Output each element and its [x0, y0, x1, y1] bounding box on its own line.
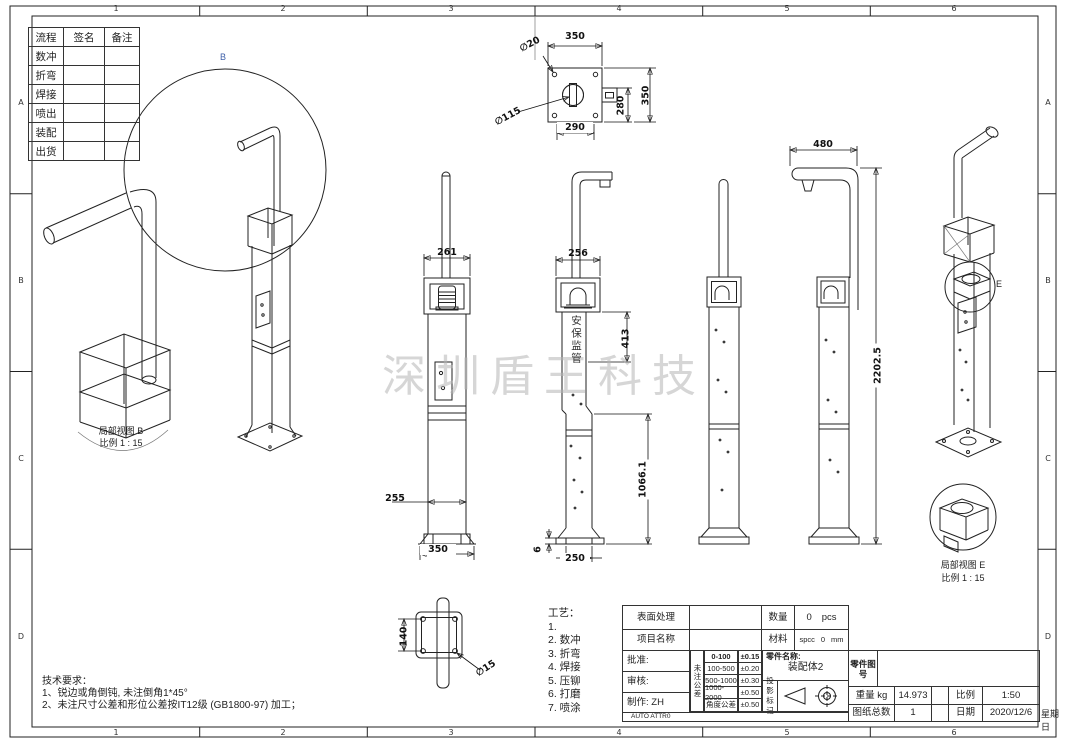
scale-value: 1:50: [982, 686, 1040, 705]
dim-top-bottom: 290: [557, 122, 593, 133]
row-right-b: B: [1040, 276, 1056, 285]
part-number-value: [877, 650, 1040, 687]
project-name-value: [689, 629, 762, 651]
detail-e-caption: 局部视图 E: [928, 558, 998, 571]
dim-arm-length: 480: [806, 139, 840, 150]
row-right-c: C: [1040, 454, 1056, 463]
zone-top-3: 3: [443, 4, 459, 13]
row-right-d: D: [1040, 632, 1056, 641]
row-left-a: A: [13, 98, 29, 107]
tech-notes-line2: 2、未注尺寸公差和形位公差按IT12级 (GB1800-97) 加工；: [42, 700, 301, 712]
third-angle-projection-icon: [779, 681, 847, 711]
tolerance-range: 角度公差: [704, 698, 738, 712]
process-header-flow: 流程: [29, 28, 64, 47]
dim-front-pole-width: 255: [383, 493, 407, 504]
dim-side-lower-h: 1066.1: [638, 460, 649, 500]
reviewer-field: 审核:: [622, 671, 690, 693]
process-step: 装配: [29, 123, 64, 142]
process-signoff-table: 流程 签名 备注 数冲 折弯 焊接 喷出 装配 出货: [28, 27, 140, 161]
process-list: 工艺： 1. 2. 数冲 3. 折弯 4. 焊接 5. 压铆 6. 打磨 7. …: [548, 607, 581, 715]
approver-field: 批准:: [622, 650, 690, 672]
project-name-label: 项目名称: [622, 629, 690, 651]
zone-bottom-6: 6: [946, 728, 962, 737]
sheet-count-value: 1: [894, 704, 932, 722]
material-unit: mm: [831, 635, 844, 645]
dim-front-base: 350: [420, 544, 456, 555]
surface-treatment-value: [689, 605, 762, 630]
detail-view-e-drawing: [930, 484, 996, 552]
process-list-item: 5. 压铆: [548, 675, 581, 689]
tolerance-title: 未注公差: [690, 650, 704, 712]
zone-bottom-4: 4: [611, 728, 627, 737]
dim-side-plate-t: 6: [533, 544, 544, 556]
date-value: 2020/12/6: [982, 704, 1040, 722]
zone-top-4: 4: [611, 4, 627, 13]
technical-notes: 技术要求： 1、锐边或角倒钝, 未注倒角1*45° 2、未注尺寸公差和形位公差按…: [42, 676, 301, 712]
dim-top-outer-h: 350: [641, 82, 652, 110]
zone-top-1: 1: [108, 4, 124, 13]
dim-side-top-width: 256: [560, 248, 596, 259]
process-header-sign: 签名: [64, 28, 105, 47]
spare-cell: [931, 686, 949, 705]
process-list-title: 工艺：: [548, 607, 581, 621]
process-list-item: 4. 焊接: [548, 661, 581, 675]
zone-bottom-3: 3: [443, 728, 459, 737]
detail-e-marker: E: [993, 279, 1005, 289]
quantity-number: 0: [806, 613, 811, 623]
material-value: spcc 0 mm: [794, 629, 849, 651]
weight-value: 14.973: [894, 686, 932, 705]
process-step: 数冲: [29, 47, 64, 66]
tech-notes-title: 技术要求：: [42, 676, 301, 688]
detail-view-b-drawing: [42, 190, 170, 451]
flange-view-drawing: [398, 598, 480, 688]
projection-label: 投影标记: [762, 680, 778, 712]
isometric-right-view-drawing: [936, 125, 1001, 457]
zone-top-5: 5: [779, 4, 795, 13]
engineering-drawing-sheet: 深圳盾王科技 1 2 3 4 5 6 1 2 3 4 5 6 A B C D A…: [0, 0, 1066, 743]
material-type: spcc: [799, 635, 814, 645]
projection-symbol-cell: [777, 680, 849, 712]
process-step: 喷出: [29, 104, 64, 123]
detail-circle-b: [124, 69, 326, 271]
sheet-count-label: 图纸总数: [848, 704, 895, 722]
zone-bottom-1: 1: [108, 728, 124, 737]
process-list-item: 3. 折弯: [548, 648, 581, 662]
scale-label: 比例: [948, 686, 983, 705]
watermark: 深圳盾王科技: [382, 340, 706, 404]
row-left-b: B: [13, 276, 29, 285]
date-weekday: 星期日: [1041, 707, 1066, 733]
maker-field: 制作: ZH: [622, 692, 690, 713]
beacon-panel-text: 安保监管: [569, 315, 584, 365]
process-step: 焊接: [29, 85, 64, 104]
zone-top-2: 2: [275, 4, 291, 13]
part-number-label: 零件图号: [848, 650, 878, 687]
process-header-note: 备注: [105, 28, 140, 47]
quantity-value: 0 pcs: [794, 605, 849, 630]
rear-view-drawing: [699, 180, 749, 545]
date-label: 日期: [948, 704, 983, 722]
material-thickness: 0: [821, 635, 825, 645]
weight-label: 重量 kg: [848, 686, 895, 705]
process-list-item: 6. 打磨: [548, 688, 581, 702]
quantity-unit: pcs: [822, 613, 837, 623]
zone-bottom-5: 5: [779, 728, 795, 737]
process-list-item: 7. 喷涂: [548, 702, 581, 716]
part-name-value: 装配体2: [788, 663, 824, 673]
dim-top-inner-h: 280: [616, 92, 627, 120]
tolerance-value: ±0.50: [738, 698, 762, 712]
process-list-item: 2. 数冲: [548, 634, 581, 648]
process-step: 出货: [29, 142, 64, 161]
row-left-c: C: [13, 454, 29, 463]
dim-top-width: 350: [557, 31, 593, 42]
arm-view-drawing: [790, 146, 882, 544]
detail-b-marker: B: [216, 52, 230, 62]
dim-side-base-w: 250: [560, 553, 590, 564]
surface-treatment-label: 表面处理: [622, 605, 690, 630]
tech-notes-line1: 1、锐边或角倒钝, 未注倒角1*45°: [42, 688, 301, 700]
zone-top-6: 6: [946, 4, 962, 13]
dim-side-beacon-h: 413: [621, 326, 632, 352]
spare-cell: [931, 704, 949, 722]
quantity-label: 数量: [761, 605, 795, 630]
process-list-item: 1.: [548, 621, 581, 635]
material-label: 材料: [761, 629, 795, 651]
dim-front-box-width: 261: [432, 247, 462, 258]
zone-bottom-2: 2: [275, 728, 291, 737]
row-right-a: A: [1040, 98, 1056, 107]
detail-e-scale: 比例 1 : 15: [928, 571, 998, 584]
auto-attr-row: AUTO ATTR0: [622, 712, 849, 722]
dim-total-height: 2202.5: [873, 344, 884, 388]
row-left-d: D: [13, 632, 29, 641]
part-name-label: 零件名称:: [766, 652, 801, 662]
detail-b-scale: 比例 1 : 15: [86, 436, 156, 449]
dim-flange-h: 140: [399, 624, 410, 650]
isometric-view-drawing: [236, 127, 302, 451]
process-step: 折弯: [29, 66, 64, 85]
